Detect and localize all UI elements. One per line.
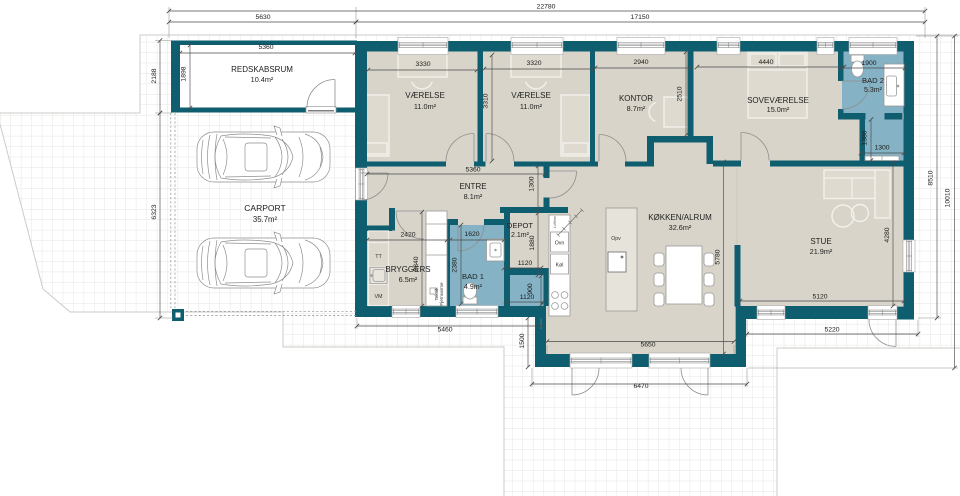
svg-text:1900: 1900 <box>861 60 876 67</box>
svg-text:2510: 2510 <box>677 86 684 101</box>
svg-text:2.1m²: 2.1m² <box>511 232 530 239</box>
svg-text:6.5m²: 6.5m² <box>399 275 418 284</box>
svg-text:ENTRE: ENTRE <box>459 182 486 191</box>
svg-text:11.0m²: 11.0m² <box>520 102 543 111</box>
svg-text:KØKKEN/ALRUM: KØKKEN/ALRUM <box>648 213 712 222</box>
svg-text:5360: 5360 <box>465 167 480 174</box>
svg-text:DEPOT: DEPOT <box>507 221 534 230</box>
svg-text:BAD 2: BAD 2 <box>862 76 884 85</box>
svg-text:8510: 8510 <box>928 170 935 185</box>
svg-text:11.0m²: 11.0m² <box>414 102 437 111</box>
svg-text:Ovn: Ovn <box>555 241 565 247</box>
svg-text:22780: 22780 <box>537 4 556 11</box>
svg-text:1300: 1300 <box>874 145 889 152</box>
svg-text:900: 900 <box>527 283 534 295</box>
svg-text:1300: 1300 <box>529 176 536 191</box>
svg-text:KONTOR: KONTOR <box>619 94 653 103</box>
svg-text:1380: 1380 <box>862 130 869 145</box>
svg-text:15.0m²: 15.0m² <box>767 105 790 114</box>
svg-text:8.7m²: 8.7m² <box>627 104 646 113</box>
svg-text:6470: 6470 <box>633 383 648 390</box>
svg-text:5220: 5220 <box>824 327 839 334</box>
svg-text:21.9m²: 21.9m² <box>810 247 833 256</box>
svg-text:8.1m²: 8.1m² <box>464 192 483 201</box>
svg-text:CARPORT: CARPORT <box>244 203 285 213</box>
svg-text:5650: 5650 <box>640 342 655 349</box>
svg-text:1880: 1880 <box>529 235 536 250</box>
svg-text:5.3m²: 5.3m² <box>864 87 883 94</box>
svg-text:4.9m²: 4.9m² <box>464 284 483 291</box>
svg-text:BAD 1: BAD 1 <box>462 272 484 281</box>
svg-text:VÆRELSE: VÆRELSE <box>405 91 445 100</box>
svg-text:35.7m²: 35.7m² <box>253 215 278 224</box>
svg-text:SOVEVÆRELSE: SOVEVÆRELSE <box>747 96 809 105</box>
svg-text:3320: 3320 <box>526 60 541 67</box>
svg-text:3330: 3330 <box>415 61 430 68</box>
svg-text:32.6m²: 32.6m² <box>669 223 692 232</box>
svg-text:5360: 5360 <box>258 44 273 51</box>
svg-text:2940: 2940 <box>633 59 648 66</box>
svg-text:4440: 4440 <box>758 59 773 66</box>
svg-text:VM: VM <box>374 294 383 300</box>
svg-text:TT: TT <box>375 254 382 260</box>
svg-text:10.4m²: 10.4m² <box>251 75 274 84</box>
svg-text:17150: 17150 <box>631 14 650 21</box>
svg-text:1120: 1120 <box>518 260 533 267</box>
svg-text:STUE: STUE <box>810 237 831 246</box>
svg-text:3310: 3310 <box>483 93 490 108</box>
svg-text:2420: 2420 <box>400 232 415 239</box>
svg-text:2188: 2188 <box>151 68 158 83</box>
svg-text:Køl: Køl <box>556 263 564 269</box>
svg-text:BRYGGERS: BRYGGERS <box>385 265 430 274</box>
svg-text:4280: 4280 <box>884 227 891 242</box>
svg-text:Fjernvarme: Fjernvarme <box>439 282 444 306</box>
svg-text:VÆRELSE: VÆRELSE <box>511 91 551 100</box>
svg-text:5630: 5630 <box>255 14 270 21</box>
svg-text:2380: 2380 <box>452 257 459 272</box>
svg-text:6323: 6323 <box>151 204 158 219</box>
svg-text:Opv: Opv <box>611 236 621 242</box>
svg-text:10010: 10010 <box>945 188 952 207</box>
svg-text:1500: 1500 <box>519 333 526 348</box>
svg-text:REDSKABSRUM: REDSKABSRUM <box>231 65 293 74</box>
svg-text:Loftlem: Loftlem <box>553 216 557 228</box>
svg-text:5120: 5120 <box>812 294 827 301</box>
svg-text:5780: 5780 <box>715 249 722 264</box>
svg-text:1620: 1620 <box>464 231 479 238</box>
svg-text:5460: 5460 <box>437 327 452 334</box>
svg-text:1898: 1898 <box>181 66 188 81</box>
